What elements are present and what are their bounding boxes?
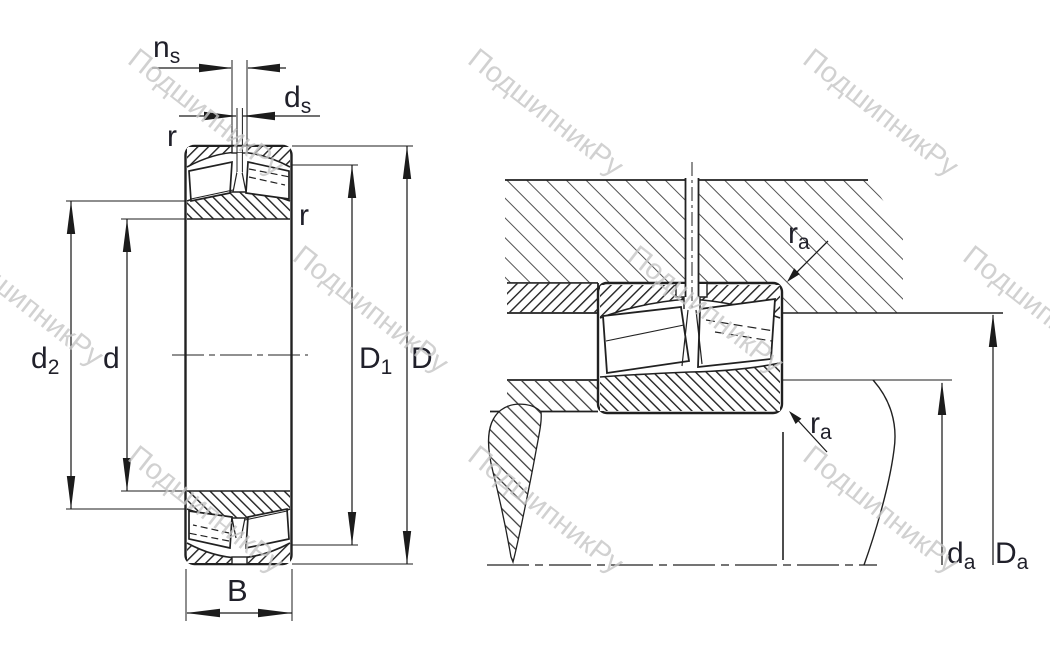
- cover-ring: [507, 283, 598, 313]
- bearing-drawing-page: ns ds r r d2 d D1 D B: [0, 0, 1050, 650]
- label-r-top-right: r: [299, 199, 309, 232]
- bearing-diagram: ns ds r r d2 d D1 D B: [0, 0, 1050, 650]
- label-B: B: [227, 573, 248, 608]
- label-r-top-left: r: [167, 120, 177, 153]
